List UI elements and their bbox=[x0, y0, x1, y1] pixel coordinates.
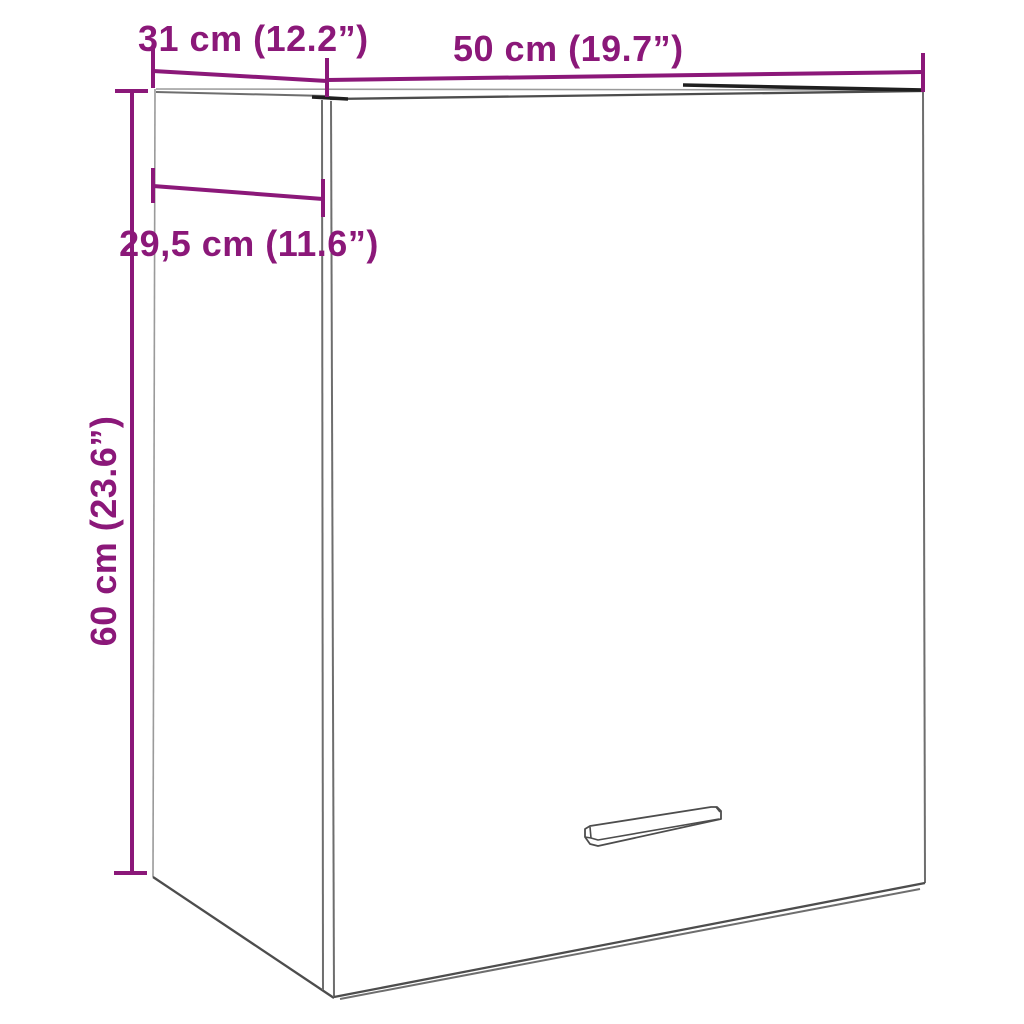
product-dimension-diagram: 31 cm (12.2”) 50 cm (19.7”) 29,5 cm (11.… bbox=[0, 0, 1024, 1024]
cabinet-line-drawing bbox=[0, 0, 1024, 1024]
cabinet-bottom-front-edge bbox=[334, 883, 925, 997]
cabinet-front-top-edge bbox=[330, 91, 923, 99]
cabinet-side-bottom-edge bbox=[153, 877, 334, 998]
dimension-label-height: 60 cm (23.6”) bbox=[82, 409, 126, 653]
cabinet-side-back-edge bbox=[153, 89, 155, 877]
dim-line bbox=[327, 72, 923, 80]
dimension-label-width-top: 50 cm (19.7”) bbox=[453, 27, 675, 71]
cabinet-right-edge bbox=[923, 91, 925, 883]
handle-left-cap-line bbox=[590, 827, 591, 838]
cabinet-side-top-edge bbox=[156, 92, 327, 96]
dim-line bbox=[153, 186, 323, 199]
cabinet-handle bbox=[585, 807, 721, 846]
handle-body bbox=[585, 807, 721, 846]
dimension-lines bbox=[114, 48, 923, 873]
dim-line bbox=[153, 71, 327, 81]
cabinet-top-dark-segment-left bbox=[312, 97, 348, 99]
cabinet-bottom-back-edge bbox=[340, 889, 920, 999]
dimension-label-depth-top: 31 cm (12.2”) bbox=[138, 17, 360, 61]
dimension-label-depth-inner: 29,5 cm (11.6”) bbox=[119, 222, 379, 266]
dimension-depth-inner-line bbox=[153, 168, 323, 217]
